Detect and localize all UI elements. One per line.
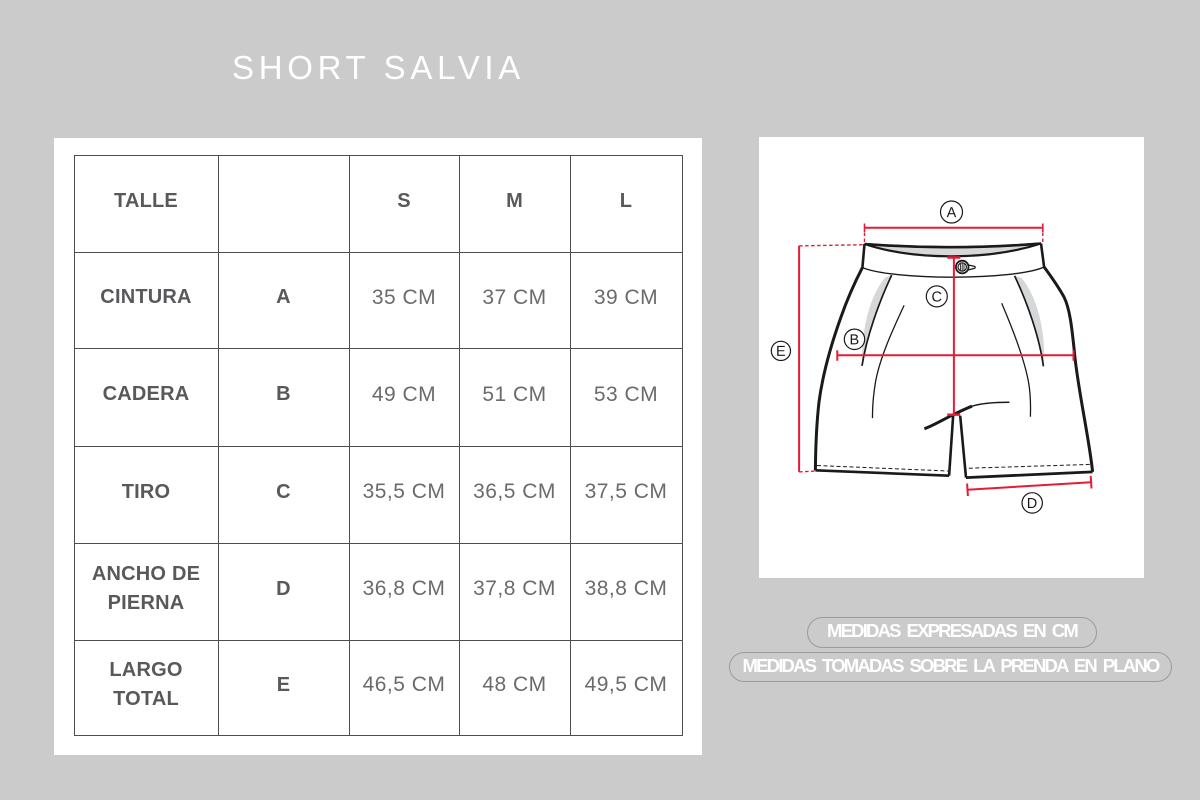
svg-text:A: A (947, 205, 957, 221)
svg-text:B: B (850, 332, 860, 348)
svg-text:E: E (776, 344, 786, 360)
svg-text:D: D (1027, 496, 1037, 512)
svg-text:C: C (931, 289, 941, 305)
